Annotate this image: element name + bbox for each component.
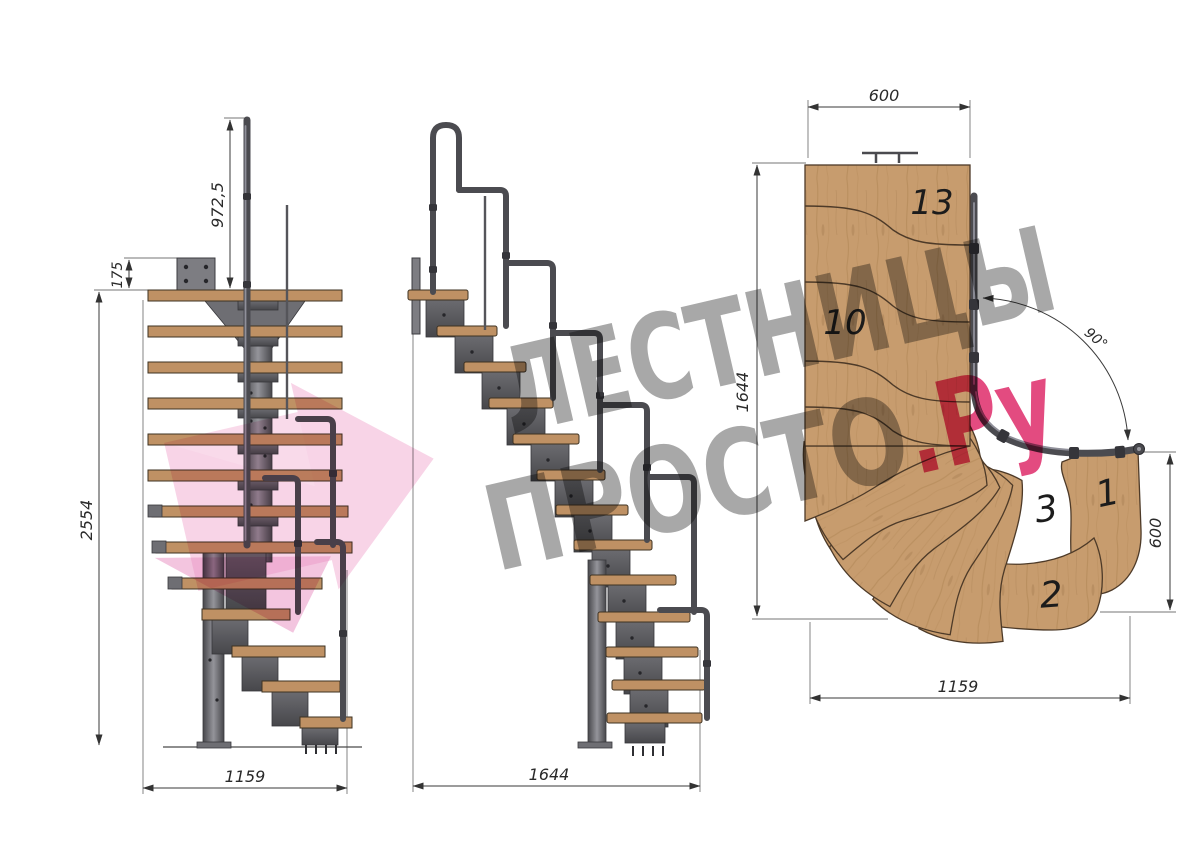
tread [607,713,702,723]
tread [590,575,676,585]
dim-front-width: 1159 [225,767,266,786]
dim-plan-right-height: 600 [1146,518,1165,549]
dim-rail-height: 972,5 [208,182,227,228]
tread [408,290,468,300]
dim-total-height: 2554 [77,500,96,541]
support-column [588,560,606,743]
dim-plan-top-width: 600 [869,86,900,105]
side-dimensions: 1644 [413,765,700,786]
support-base-plate [578,742,612,748]
dim-plan-bottom-width: 1159 [938,677,979,696]
step-label-3: 3 [1032,488,1060,532]
tread [232,646,325,657]
stair-drawing-canvas: 2554 175 972,5 1159 [0,0,1200,849]
dim-turn-angle: 90° [1081,325,1110,353]
ceiling-mount-plate [177,258,215,290]
stair-drawing: 2554 175 972,5 1159 [0,0,1200,849]
step-label-2: 2 [1038,574,1064,616]
plan-wall-bracket [862,153,918,163]
base-anchor-bolts [633,746,663,756]
tread [262,681,340,692]
column-base-plate [197,742,231,748]
step-label-13: 13 [910,183,953,223]
dim-plate-offset: 175 [110,262,126,289]
tread [606,647,698,657]
tread [598,612,690,622]
tread [612,680,705,690]
dim-side-run: 1644 [529,765,570,784]
